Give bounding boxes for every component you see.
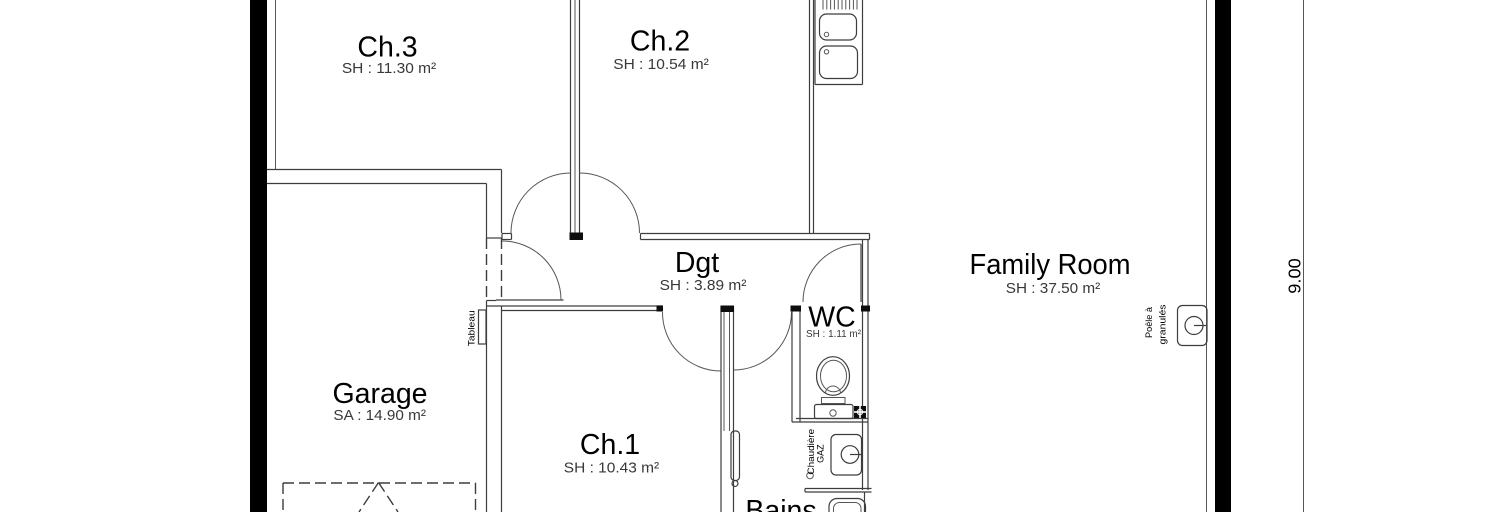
svg-text:Ch.3: Ch.3 [357, 32, 417, 64]
svg-text:SH : 11.30 m²: SH : 11.30 m² [342, 60, 436, 77]
svg-text:SH : 10.54 m²: SH : 10.54 m² [613, 56, 709, 73]
svg-text:Ch.1: Ch.1 [580, 429, 640, 461]
svg-text:Garage: Garage [332, 378, 427, 410]
svg-text:Tableau: Tableau [467, 310, 477, 346]
svg-text:SH : 10.43 m²: SH : 10.43 m² [564, 460, 659, 477]
svg-text:9.00: 9.00 [1285, 258, 1305, 294]
svg-text:Family Room: Family Room [970, 249, 1131, 281]
svg-text:Dgt: Dgt [675, 247, 719, 279]
svg-text:SH : 3.89 m²: SH : 3.89 m² [660, 277, 747, 294]
svg-text:SH : 1.11 m²: SH : 1.11 m² [806, 329, 862, 340]
svg-text:Bains: Bains [745, 495, 816, 512]
svg-text:SH : 37.50 m²: SH : 37.50 m² [1006, 280, 1100, 297]
svg-text:GAZ: GAZ [815, 444, 825, 463]
svg-text:SA : 14.90 m²: SA : 14.90 m² [333, 407, 426, 424]
svg-text:granulés: granulés [1158, 304, 1168, 345]
svg-text:Ch.2: Ch.2 [630, 26, 690, 58]
svg-text:Poêle à: Poêle à [1144, 307, 1154, 338]
